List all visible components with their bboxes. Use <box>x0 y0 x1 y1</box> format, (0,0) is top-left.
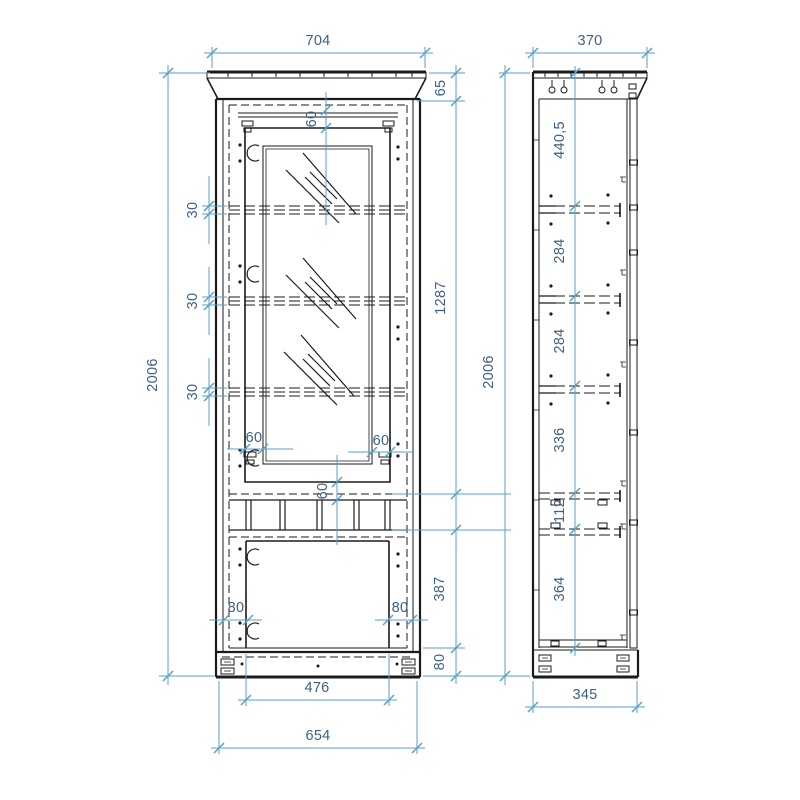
dim-lower-door-height: 387 <box>432 576 448 601</box>
dim-body-width: 654 <box>305 728 330 744</box>
dim-door-offset-left: 80 <box>228 600 245 616</box>
technical-drawing: 704 2006 65 1287 387 80 60 30 30 30 60 6… <box>0 0 800 800</box>
dim-stile-right: 60 <box>373 433 390 449</box>
dim-glass-door-height: 1287 <box>433 281 449 314</box>
dim-shelf-thickness-bottom: 30 <box>185 384 201 401</box>
dim-side-section-4: 336 <box>552 427 568 452</box>
dimension-lines <box>168 53 655 748</box>
side-view <box>533 72 647 677</box>
dim-shelf-thickness-middle: 30 <box>185 293 201 310</box>
drawing-canvas: 704 2006 65 1287 387 80 60 30 30 30 60 6… <box>0 0 800 800</box>
dim-side-plinth-depth: 345 <box>572 687 597 703</box>
dim-niche-gap: 60 <box>315 483 331 500</box>
dim-side-section-2: 284 <box>552 238 568 263</box>
dim-cornice-height: 65 <box>433 80 449 97</box>
shelves <box>229 206 407 396</box>
side-cornice <box>533 72 647 99</box>
dim-side-section-top: 440,5 <box>552 121 568 159</box>
side-back-wall <box>533 72 539 650</box>
dim-side-depth: 370 <box>577 33 602 49</box>
dim-side-overall-height: 2006 <box>481 355 497 388</box>
niche-compartment <box>229 494 407 537</box>
side-bottom <box>533 640 638 677</box>
dim-front-overall-height: 2006 <box>145 358 161 391</box>
side-front-door-section <box>620 99 638 648</box>
glass-hatch-icon <box>284 153 356 405</box>
side-fitting-holes <box>549 193 609 405</box>
dim-side-niche-height: 112 <box>552 499 568 523</box>
front-view <box>207 72 426 677</box>
dim-shelf-thickness-top: 30 <box>185 202 201 219</box>
cornice <box>207 72 426 99</box>
dim-lower-panel-width: 476 <box>304 680 329 696</box>
dim-plinth-height: 80 <box>432 654 448 671</box>
dim-door-offset-right: 80 <box>392 600 409 616</box>
dim-top-rail: 60 <box>304 111 320 128</box>
dim-stile-left: 60 <box>246 430 263 446</box>
dim-side-section-bottom: 364 <box>552 576 568 601</box>
dim-side-section-3: 284 <box>552 328 568 353</box>
lower-door <box>216 541 420 652</box>
dim-front-overall-width: 704 <box>305 33 330 49</box>
side-shelves <box>539 203 621 397</box>
